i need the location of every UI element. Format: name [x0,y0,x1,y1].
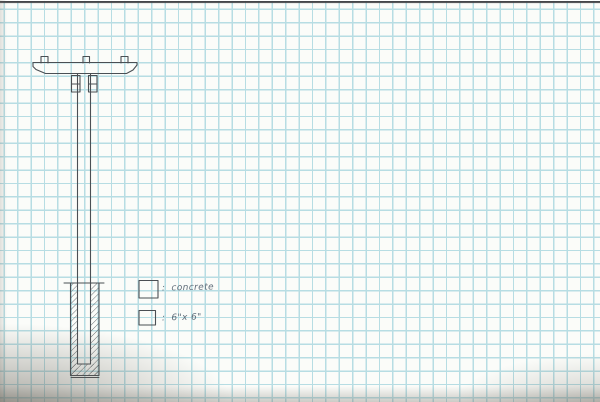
legend-post-swatch-icon [139,311,156,326]
footing-hatch-right [91,283,100,376]
post-footing-sketch [0,0,600,402]
legend-label-post-size: 6"x 6" [171,312,202,324]
legend-item-post-size: : 6"x 6" [162,312,202,324]
legend-separator: : [162,313,166,324]
paper-top-edge [0,0,600,4]
clamp-right [89,76,98,93]
graph-paper: : concrete : 6"x 6" [0,0,600,402]
legend-item-concrete: : concrete [162,282,214,294]
clamp-left [72,76,81,93]
cap-rail [33,63,137,74]
legend-concrete-swatch-icon [139,281,158,299]
footing-hatch-bottom [71,364,100,376]
legend-label-concrete: concrete [171,282,214,294]
legend-separator: : [162,284,166,295]
footing-hatch-left [71,283,78,376]
